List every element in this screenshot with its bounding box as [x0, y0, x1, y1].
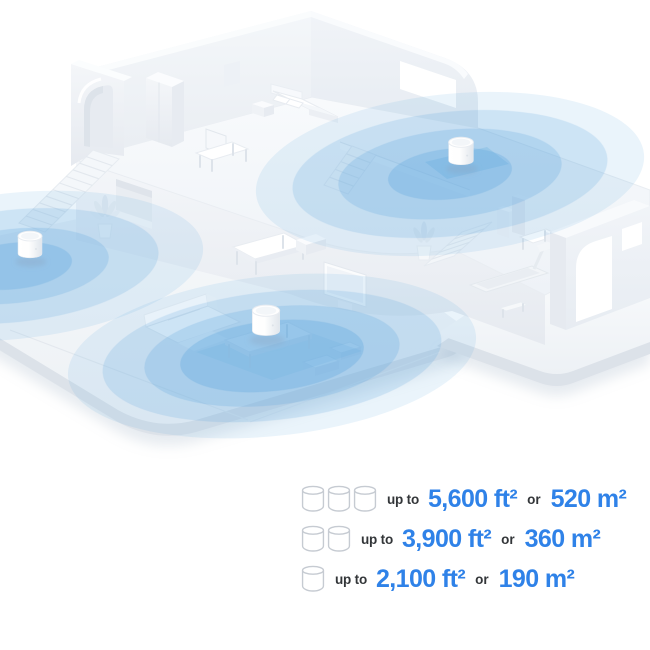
coverage-legend-row: up to 5,600 ft² or 520 m²: [301, 479, 626, 519]
coverage-sqm-value: 190 m²: [499, 565, 575, 594]
page: { "legend": { "rows": [ {"units": 3, "pr…: [0, 0, 650, 650]
deco-unit-icon: [327, 525, 351, 553]
deco-unit-icon: [301, 485, 325, 513]
or-label: or: [501, 532, 515, 547]
or-label: or: [527, 492, 541, 507]
deco-unit-icon: [327, 485, 351, 513]
deco-unit-1: [15, 231, 46, 267]
deco-unit-2: [446, 137, 478, 174]
coverage-sqft-value: 2,100 ft²: [376, 565, 465, 594]
unit-icons: [301, 485, 377, 513]
deco-unit-3: [249, 305, 285, 346]
entry-portal-arch: [71, 60, 132, 166]
coverage-legend: up to 5,600 ft² or 520 m² up to 3,900 ft…: [301, 479, 626, 599]
coverage-sqft-value: 5,600 ft²: [428, 485, 517, 514]
deco-unit-icon: [301, 525, 325, 553]
unit-icons: [301, 565, 325, 593]
coverage-sqm-value: 520 m²: [551, 485, 627, 514]
up-to-label: up to: [361, 532, 393, 547]
wardrobe: [146, 72, 184, 147]
unit-icons: [301, 525, 351, 553]
coverage-sqm-value: 360 m²: [525, 525, 601, 554]
coverage-legend-row: up to 3,900 ft² or 360 m²: [301, 519, 626, 559]
up-to-label: up to: [335, 572, 367, 587]
up-to-label: up to: [387, 492, 419, 507]
wall-picture-frame: [224, 61, 240, 87]
or-label: or: [475, 572, 489, 587]
coverage-legend-row: up to 2,100 ft² or 190 m²: [301, 559, 626, 599]
deco-unit-icon: [353, 485, 377, 513]
deco-unit-icon: [301, 565, 325, 593]
coverage-sqft-value: 3,900 ft²: [402, 525, 491, 554]
